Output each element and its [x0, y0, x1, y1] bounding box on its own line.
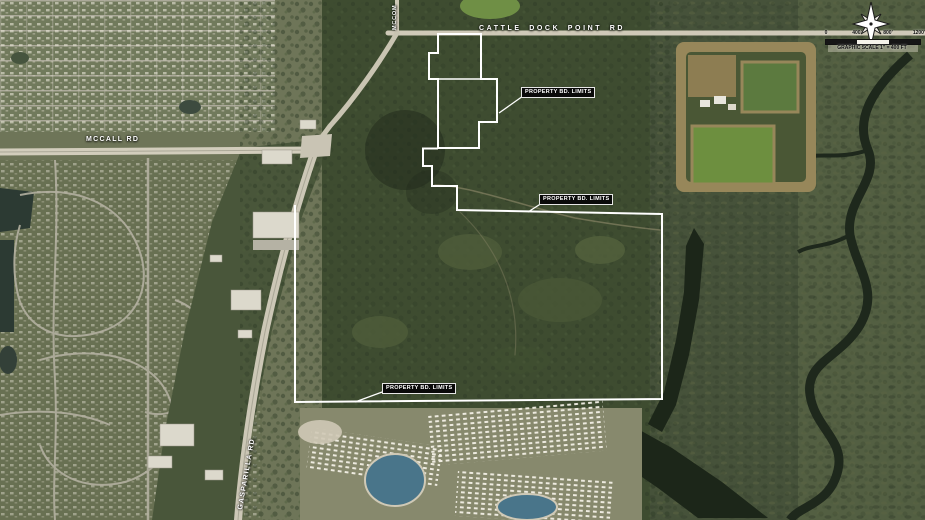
scale-tick-400: 400': [852, 30, 862, 36]
scale-caption: GRAPHIC SCALE 1" = 400 FT: [837, 45, 906, 51]
scale-tick-800: 800': [883, 30, 893, 36]
map-canvas: CATTLE DOCK POINT RD MCCALL RD GASPARILL…: [0, 0, 925, 520]
property-boundary-label-south: PROPERTY BD. LIMITS: [382, 383, 456, 394]
scale-tick-0: 0: [825, 30, 828, 36]
property-boundary-label-north: PROPERTY BD. LIMITS: [521, 87, 595, 98]
road-label-mccall-rd: MCCALL RD: [86, 136, 139, 143]
graphic-scale: 0 400' 800' 1200' GRAPHIC SCALE 1" = 400…: [822, 30, 922, 52]
scale-segment: [826, 40, 857, 44]
scale-segment: [857, 40, 888, 44]
road-label-cattle-dock-point-rd: CATTLE DOCK POINT RD: [479, 25, 625, 32]
road-label-north-road-partial: MCCOM: [392, 5, 398, 30]
scale-tick-1200: 1200': [913, 30, 925, 36]
scale-segment: [889, 40, 920, 44]
aerial-imagery: [0, 0, 925, 520]
property-boundary-label-middle: PROPERTY BD. LIMITS: [539, 194, 613, 205]
